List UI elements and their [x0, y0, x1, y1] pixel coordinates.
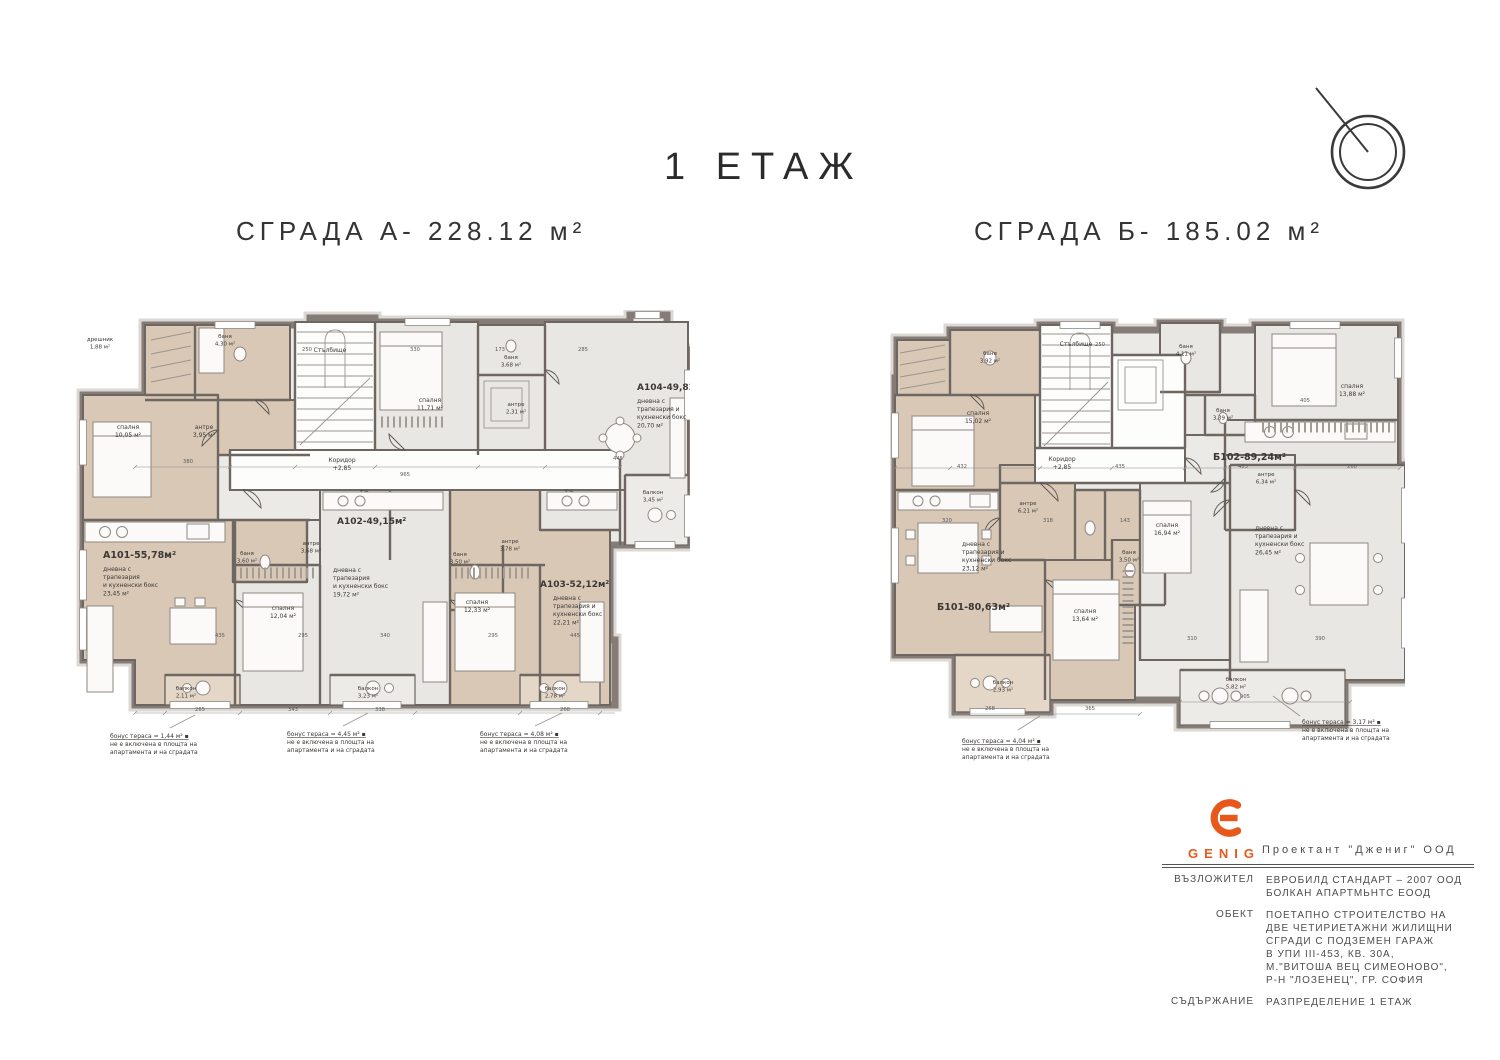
room-label: спалня13,88 м²	[1339, 383, 1366, 398]
dimension-label: 338	[375, 707, 385, 713]
field-label: СЪДЪРЖАНИЕ	[1162, 996, 1254, 1009]
genig-logo-mark-icon	[1196, 794, 1252, 842]
room-label: балкон2,11 м²	[176, 686, 197, 699]
apartment-label: А104-49,82м²	[637, 383, 690, 393]
dimension-label: 365	[1085, 706, 1095, 712]
room-label: спалня12,33 м²	[464, 599, 491, 614]
room-label: спалня15,02 м²	[965, 410, 992, 425]
room-label: бонус тераса = 4,04 м² ▪не е включена в …	[962, 738, 1050, 761]
apartment-label: А101-55,78м²	[103, 550, 176, 561]
building-b-heading: СГРАДА Б- 185.02 м²	[974, 216, 1324, 247]
apartment-label: Б102-89,24м²	[1213, 452, 1286, 463]
dimension-label: 285	[578, 347, 588, 353]
floor-plan-sheet: 1 ЕТАЖ СГРАДА А- 228.12 м² СГРАДА Б- 185…	[0, 0, 1500, 1060]
room-label: бонус тераса = 4,45 м² ▪не е включена в …	[287, 731, 375, 754]
dimension-label: 432	[957, 464, 967, 470]
room-label: балкон2,93 м²	[993, 680, 1014, 693]
dimension-label: 340	[380, 633, 390, 639]
dimension-label: 250	[302, 347, 312, 353]
room-label: спалня11,71 м²	[417, 397, 444, 412]
title-block-header: GENIG Проектант "Джениг" ООД	[1162, 794, 1474, 862]
title-block-row: СЪДЪРЖАНИЕРАЗПРЕДЕЛЕНИЕ 1 ЕТАЖ	[1162, 996, 1474, 1009]
dimension-label: 173	[495, 347, 505, 353]
field-value: РАЗПРЕДЕЛЕНИЕ 1 ЕТАЖ	[1266, 996, 1412, 1009]
dimension-label: 435	[1115, 464, 1125, 470]
field-value: ЕВРОБИЛД СТАНДАРТ – 2007 ООДБОЛКАН АПАРТ…	[1266, 874, 1462, 900]
room-label: балкон3,45 м²	[643, 490, 664, 503]
floor-plan-building-b: 2504054324354832603203181433103902683659…	[890, 318, 1405, 770]
room-label: спалня10,05 м²	[115, 424, 142, 439]
dimension-label: 250	[1095, 342, 1105, 348]
title-block-row: ВЪЗЛОЖИТЕЛЕВРОБИЛД СТАНДАРТ – 2007 ООДБО…	[1162, 874, 1474, 900]
designer-line: Проектант "Джениг" ООД	[1262, 844, 1457, 856]
title-block: GENIG Проектант "Джениг" ООД ВЪЗЛОЖИТЕЛЕ…	[1162, 794, 1474, 1018]
room-label: спалня16,94 м²	[1154, 522, 1181, 537]
dimension-label: 330	[410, 347, 420, 353]
dimension-label: 318	[1043, 518, 1053, 524]
room-label: балкон3,23 м²	[358, 686, 379, 699]
logo-text: GENIG	[1186, 846, 1262, 861]
dimension-label: 265	[195, 707, 205, 713]
divider	[1162, 864, 1474, 868]
room-label: бонус тераса = 4,08 м² ▪не е включена в …	[480, 731, 568, 754]
dimension-label: 320	[942, 518, 952, 524]
dimension-label: 435	[215, 633, 225, 639]
dimension-label: 445	[570, 633, 580, 639]
dimension-label: 310	[1187, 636, 1197, 642]
dimension-label: 268	[560, 707, 570, 713]
room-label: антре3,78 м²	[500, 539, 520, 552]
room-label: бонус тераса = 3,17 м² ▪не е включена в …	[1302, 719, 1390, 742]
room-label: Стълбище	[1060, 341, 1093, 348]
apartment-label: А103-52,12м²	[540, 580, 609, 590]
dimension-label: 390	[1315, 636, 1325, 642]
field-value: ПОЕТАПНО СТРОИТЕЛСТВО НАДВЕ ЧЕТИРИЕТАЖНИ…	[1266, 909, 1453, 987]
genig-logo-icon: GENIG	[1186, 794, 1262, 861]
building-a-heading: СГРАДА А- 228.12 м²	[236, 216, 586, 247]
dimension-label: 405	[1300, 398, 1310, 404]
dimension-label: 380	[183, 459, 193, 465]
dimension-label: 905	[1240, 694, 1250, 700]
room-label: спалня13,64 м²	[1072, 608, 1099, 623]
dimension-label: 343	[288, 707, 298, 713]
floor-plan-building-a: 2503301732853809654454352953402954452653…	[75, 310, 690, 775]
room-label: балкон2,78 м²	[545, 686, 566, 699]
page-title: 1 ЕТАЖ	[664, 146, 863, 189]
north-indicator-icon	[1302, 80, 1432, 220]
dimension-label: 143	[1120, 518, 1130, 524]
dimension-label: 295	[488, 633, 498, 639]
dimension-label: 260	[1347, 464, 1357, 470]
room-label: бонус тераса = 1,44 м² ▪не е включена в …	[110, 733, 198, 756]
room-label: антре6,34 м²	[1256, 472, 1276, 485]
dimension-label: 965	[400, 472, 410, 478]
title-block-rows: ВЪЗЛОЖИТЕЛЕВРОБИЛД СТАНДАРТ – 2007 ООДБО…	[1162, 874, 1474, 1009]
dimension-label: 268	[985, 706, 995, 712]
room-label: дрешник1,88 м²	[87, 337, 114, 350]
dimension-label: 295	[298, 633, 308, 639]
field-label: ОБЕКТ	[1162, 909, 1254, 987]
room-label: антре3,95 м²	[193, 424, 216, 439]
dimension-label: 483	[1238, 464, 1248, 470]
title-block-row: ОБЕКТПОЕТАПНО СТРОИТЕЛСТВО НАДВЕ ЧЕТИРИЕ…	[1162, 909, 1474, 987]
field-label: ВЪЗЛОЖИТЕЛ	[1162, 874, 1254, 900]
room-label: антре2,31 м²	[506, 402, 526, 415]
apartment-label: А102-49,15м²	[337, 517, 406, 527]
apartment-label: Б101-80,63м²	[937, 602, 1010, 613]
room-label: антре6,21 м²	[1018, 501, 1038, 514]
room-label: антре3,68 м²	[301, 541, 321, 554]
room-label: Стълбище	[314, 347, 347, 354]
room-label: балкон5,82 м²	[1226, 677, 1247, 690]
dimension-label: 445	[613, 456, 623, 462]
room-label: спалня12,04 м²	[270, 605, 297, 620]
